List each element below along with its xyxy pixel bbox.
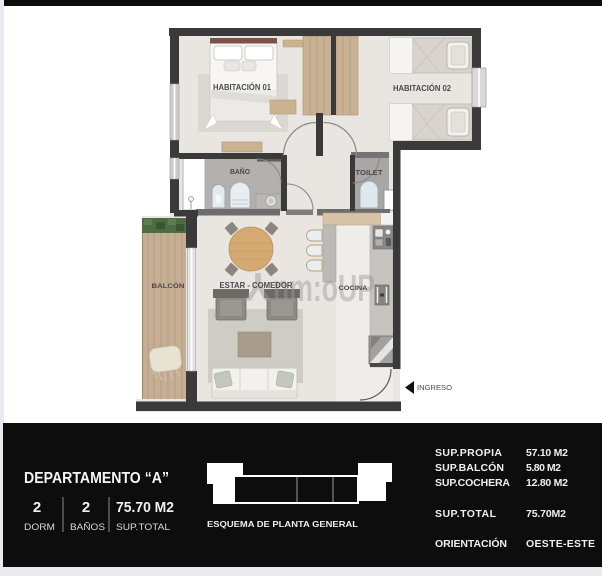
svg-text:TOILET: TOILET [356,168,383,177]
svg-text:57.10 M2: 57.10 M2 [526,447,568,459]
svg-text:DEPARTAMENTO “A”: DEPARTAMENTO “A” [24,470,169,487]
svg-text:ORIENTACIÓN: ORIENTACIÓN [435,537,507,550]
svg-text:SUP.BALCÓN: SUP.BALCÓN [435,461,504,474]
svg-text:SUP.PROPIA: SUP.PROPIA [435,447,502,459]
svg-text:SUP.TOTAL: SUP.TOTAL [435,508,497,520]
svg-text:75.70 M2: 75.70 M2 [116,500,174,516]
svg-text:BAÑO: BAÑO [230,167,250,176]
svg-text:BAÑOS: BAÑOS [70,522,105,533]
svg-text:HABITACIÓN 02: HABITACIÓN 02 [393,82,451,93]
svg-text:INGRESO: INGRESO [417,385,453,392]
svg-text:12.80 M2: 12.80 M2 [526,477,568,489]
svg-text:5.80 M2: 5.80 M2 [526,462,561,474]
svg-text:SUP.TOTAL: SUP.TOTAL [116,522,170,533]
svg-text:SUP.COCHERA: SUP.COCHERA [435,477,510,489]
svg-text:HABITACIÓN 01: HABITACIÓN 01 [213,81,271,92]
svg-text:75.70M2: 75.70M2 [526,508,566,520]
svg-text:OESTE-ESTE: OESTE-ESTE [526,538,595,550]
svg-text:2: 2 [82,499,90,516]
svg-text:DORM: DORM [24,522,55,533]
svg-text:ESQUEMA DE PLANTA GENERAL: ESQUEMA DE PLANTA GENERAL [207,519,358,529]
svg-text:COCINA: COCINA [339,285,368,292]
svg-text:BALCÓN: BALCÓN [152,281,185,290]
svg-text:ESTAR - COMEDOR: ESTAR - COMEDOR [220,281,293,290]
svg-text:2: 2 [33,499,41,516]
